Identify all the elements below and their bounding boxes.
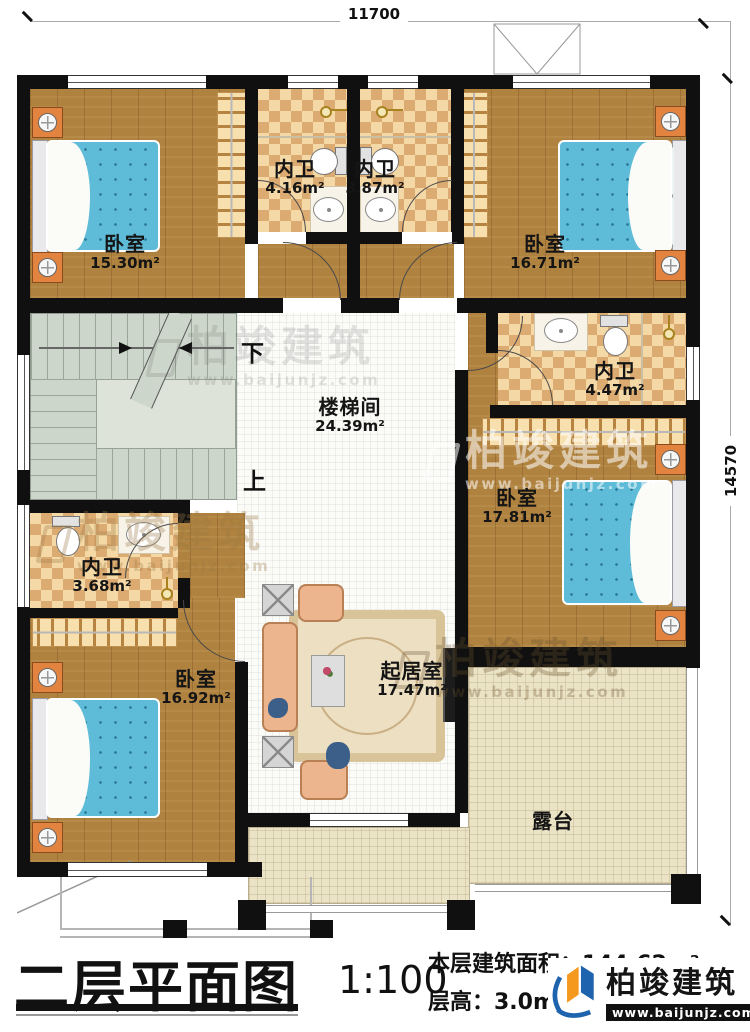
terrace-glass-door: [310, 813, 408, 827]
nightstand: [32, 662, 63, 693]
wall: [17, 298, 283, 313]
terrace-floor-south: [248, 827, 470, 904]
table-flowers: [320, 664, 334, 678]
coffee-table: [311, 655, 345, 707]
wall: [457, 298, 700, 313]
bed-mid-right: [562, 480, 672, 605]
staircase: [30, 313, 237, 500]
room-label-bedroom-bottom-left: 卧室16.92m²: [136, 668, 256, 707]
brand-logo-icon: [548, 961, 600, 1019]
shower-partition: [360, 136, 451, 138]
wall: [178, 513, 190, 523]
window: [17, 355, 30, 470]
wall: [455, 647, 700, 667]
nightstand: [32, 822, 63, 853]
wall: [17, 608, 178, 618]
shower-icon: [376, 106, 388, 118]
toilet-icon: [56, 527, 80, 556]
wall: [237, 813, 310, 827]
bay-window-outline: [493, 23, 581, 75]
terrace-railing: [686, 668, 698, 878]
terrace-railing: [265, 905, 447, 913]
wall: [245, 232, 258, 244]
shower-arm: [668, 315, 670, 328]
closet-top-right: [460, 92, 488, 238]
stair-arrow-left-icon: [119, 342, 132, 354]
closet-top-left: [217, 92, 246, 238]
balcony-line: [60, 877, 62, 929]
title-underline-thin: [16, 1014, 298, 1016]
nightstand: [655, 250, 686, 281]
person-figure: [326, 742, 350, 769]
room-label-bath-top-mid: 内卫3.87m²: [335, 158, 415, 197]
toilet-tank-icon: [600, 315, 628, 327]
column: [671, 874, 701, 904]
room-label-bath-mid-right: 内卫4.47m²: [575, 360, 655, 399]
room-label-bedroom-top-left: 卧室15.30m²: [65, 233, 185, 272]
closet-mid-right: [482, 418, 686, 446]
dimension-tick: [698, 18, 709, 29]
wall: [306, 232, 402, 244]
floor-height-text: 层高：3.0m: [428, 984, 556, 1016]
bed-sheet: [628, 142, 670, 250]
wall: [17, 500, 190, 513]
wall: [408, 813, 460, 827]
sink-icon: [365, 197, 396, 222]
room-label-stairwell: 楼梯间24.39m²: [290, 396, 410, 435]
shower-icon: [320, 106, 332, 118]
stair-flight-bottom: [96, 449, 236, 499]
nightstand: [32, 252, 63, 283]
side-table: [262, 736, 294, 768]
dimension-tick: [722, 73, 733, 84]
stair-arrow-right-icon: [179, 342, 192, 354]
shower-icon: [161, 588, 173, 600]
sink-icon: [313, 197, 344, 222]
corridor-floor: [190, 513, 245, 598]
room-label-living-room: 起居室17.47m²: [362, 660, 462, 699]
shower-icon: [663, 328, 675, 340]
brand-logo: 柏竣建筑 www.baijunjz.com: [548, 958, 750, 1021]
stair-landing: [96, 379, 236, 449]
nightstand: [32, 107, 63, 138]
side-table: [262, 584, 294, 616]
dimension-top-value: 11700: [340, 5, 408, 23]
room-label-terrace: 露台: [513, 810, 593, 832]
brand-name: 柏竣建筑: [606, 958, 750, 1002]
wall: [455, 370, 468, 813]
room-label-bedroom-mid-right: 卧室17.81m²: [462, 487, 572, 526]
window: [368, 75, 418, 89]
toilet-icon: [603, 327, 628, 356]
stair-down-label: 下: [241, 334, 264, 368]
shower-arm: [387, 109, 403, 111]
stair-cut-line: [39, 347, 234, 349]
bed-sheet: [48, 700, 90, 816]
toilet-tank-icon: [52, 516, 80, 527]
window: [288, 75, 338, 89]
wall: [17, 75, 30, 877]
wall: [341, 298, 399, 313]
terrace-railing: [475, 884, 675, 892]
wall: [451, 89, 464, 232]
shower-partition: [258, 136, 347, 138]
closet-bottom-left: [32, 618, 177, 647]
room-label-bath-top-left: 内卫4.16m²: [255, 158, 335, 197]
armchair: [298, 584, 344, 622]
dimension-tick: [22, 11, 33, 22]
bed-sheet: [630, 482, 670, 603]
nightstand: [655, 106, 686, 137]
column: [163, 920, 187, 938]
column: [238, 900, 266, 930]
window: [686, 347, 700, 400]
stair-up-label: 上: [243, 462, 266, 496]
window: [68, 862, 207, 877]
room-label-bedroom-top-right: 卧室16.71m²: [485, 233, 605, 272]
column: [447, 900, 475, 930]
nightstand: [655, 444, 686, 475]
stair-flight-left: [31, 379, 96, 499]
person-figure: [268, 698, 288, 718]
room-label-bath-bottom-left: 内卫3.68m²: [62, 556, 142, 595]
wall: [490, 405, 700, 418]
nightstand: [655, 610, 686, 641]
window: [17, 505, 30, 607]
shower-arm: [331, 109, 347, 111]
floor-plan-page: 下 上: [0, 0, 750, 1032]
dimension-right-value: 14570: [722, 436, 740, 506]
window: [68, 75, 206, 89]
window: [513, 75, 650, 89]
sink-icon: [544, 318, 578, 343]
bed-bottom-left: [46, 698, 160, 818]
brand-url: www.baijunjz.com: [606, 1004, 750, 1021]
terrace-floor-east: [468, 667, 688, 884]
title-underline: [16, 1004, 298, 1011]
column: [310, 920, 333, 938]
